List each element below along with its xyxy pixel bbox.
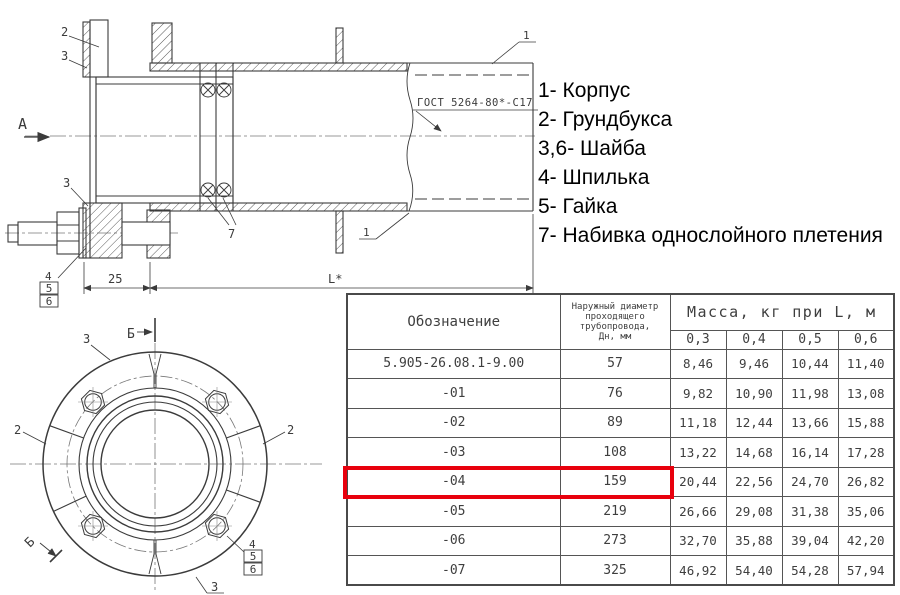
callout-1: 1: [523, 29, 530, 42]
mass-cell: 17,28: [838, 438, 894, 468]
mass-cell: 13,08: [838, 379, 894, 409]
callout-2: 2: [61, 25, 68, 39]
gland-block: [90, 203, 122, 258]
mass-cell: 14,68: [726, 438, 782, 468]
designation-cell: -01: [347, 379, 560, 409]
flange-view-drawing: Б Б 3 2 2 3 4 5 6: [0, 312, 340, 595]
dn-cell: 325: [560, 556, 670, 586]
legend-item: 5- Гайка: [538, 192, 883, 221]
section-b-label: Б: [22, 535, 38, 551]
callout-5: 5: [250, 550, 257, 563]
mass-cell: 11,98: [782, 379, 838, 409]
mass-cell: 10,44: [782, 349, 838, 379]
diameter-header-line: Наружный диаметр: [561, 302, 670, 312]
mass-cell: 9,46: [726, 349, 782, 379]
highlight-row-box: [343, 466, 674, 499]
designation-cell: -03: [347, 438, 560, 468]
mass-cell: 35,88: [726, 526, 782, 556]
legend-item: 3,6- Шайба: [538, 134, 883, 163]
diameter-header-line: Дн, мм: [561, 332, 670, 342]
legend-item: 4- Шпилька: [538, 163, 883, 192]
table-row: -01769,8210,9011,9813,08: [347, 379, 894, 409]
fin-top: [336, 28, 343, 63]
designation-cell: -05: [347, 497, 560, 527]
mass-cell: 31,38: [782, 497, 838, 527]
mass-cell: 10,90: [726, 379, 782, 409]
designation-cell: -07: [347, 556, 560, 586]
dn-cell: 273: [560, 526, 670, 556]
legend-item: 1- Корпус: [538, 76, 883, 105]
diameter-header-line: проходящего: [561, 312, 670, 322]
mass-cell: 29,08: [726, 497, 782, 527]
mass-cell: 9,82: [670, 379, 726, 409]
dn-cell: 76: [560, 379, 670, 409]
dim-L: L*: [328, 272, 342, 286]
sleeve-bottom-wall: [150, 203, 407, 211]
stud-shaft: [18, 222, 57, 245]
mass-cell: 13,66: [782, 408, 838, 438]
mass-cell: 46,92: [670, 556, 726, 586]
designation-cell: 5.905-26.08.1-9.00: [347, 349, 560, 379]
mass-cell: 8,46: [670, 349, 726, 379]
mass-cell: 16,14: [782, 438, 838, 468]
length-column: 0,3: [670, 330, 726, 349]
callout-7: 7: [228, 227, 235, 241]
mass-cell: 20,44: [670, 467, 726, 497]
designation-cell: -02: [347, 408, 560, 438]
mass-cell: 57,94: [838, 556, 894, 586]
mass-cell: 54,40: [726, 556, 782, 586]
parts-legend: 1- Корпус 2- Грундбукса 3,6- Шайба 4- Шп…: [538, 76, 883, 250]
mass-cell: 12,44: [726, 408, 782, 438]
mass-cell: 42,20: [838, 526, 894, 556]
mass-cell: 26,82: [838, 467, 894, 497]
mass-cell: 26,66: [670, 497, 726, 527]
designation-cell: -06: [347, 526, 560, 556]
mass-cell: 11,40: [838, 349, 894, 379]
dn-cell: 89: [560, 408, 670, 438]
table-row: -0521926,6629,0831,3835,06: [347, 497, 894, 527]
weld-bracket-top: [152, 23, 172, 63]
dn-cell: 219: [560, 497, 670, 527]
table-row: -0627332,7035,8839,0442,20: [347, 526, 894, 556]
mass-cell: 39,04: [782, 526, 838, 556]
mass-cell: 15,88: [838, 408, 894, 438]
callout-5: 5: [46, 282, 53, 295]
table-row: -0310813,2214,6816,1417,28: [347, 438, 894, 468]
drawing-sheet: А 2 3 3 4 5 6 7 1 1 ГОСТ 5264-80*-С17 25…: [0, 0, 900, 595]
mass-cell: 11,18: [670, 408, 726, 438]
fin-bottom: [336, 211, 343, 253]
designation-header: Обозначение: [347, 294, 560, 349]
mass-cell: 54,28: [782, 556, 838, 586]
callout-3: 3: [211, 580, 218, 594]
mass-cell: 24,70: [782, 467, 838, 497]
callout-6: 6: [250, 563, 257, 576]
mass-cell: 35,06: [838, 497, 894, 527]
gland-plate-top: [90, 20, 108, 77]
mass-header: Масса, кг при L, м: [670, 294, 894, 330]
diameter-header-line: трубопровода,: [561, 322, 670, 332]
view-a-label: А: [18, 115, 27, 133]
length-column: 0,6: [838, 330, 894, 349]
sleeve-top-wall: [150, 63, 407, 71]
length-column: 0,5: [782, 330, 838, 349]
weld-note: ГОСТ 5264-80*-С17: [417, 97, 533, 109]
break-line: [407, 63, 413, 211]
section-view-drawing: А 2 3 3 4 5 6 7 1 1 ГОСТ 5264-80*-С17 25…: [0, 0, 540, 312]
mass-table: Обозначение Наружный диаметр проходящего…: [346, 293, 895, 586]
table-row: -028911,1812,4413,6615,88: [347, 408, 894, 438]
callout-2: 2: [14, 423, 21, 437]
section-b-label: Б: [127, 327, 135, 342]
table-row: -0732546,9254,4054,2857,94: [347, 556, 894, 586]
dn-cell: 57: [560, 349, 670, 379]
dim-25: 25: [108, 272, 122, 286]
mass-cell: 13,22: [670, 438, 726, 468]
washer-top: [83, 22, 90, 77]
callout-1: 1: [363, 226, 370, 239]
mass-cell: 22,56: [726, 467, 782, 497]
dn-cell: 108: [560, 438, 670, 468]
stud-end: [8, 225, 18, 242]
stud-through: [122, 222, 170, 245]
callout-6: 6: [46, 295, 53, 308]
table-row: 5.905-26.08.1-9.00578,469,4610,4411,40: [347, 349, 894, 379]
callout-3: 3: [83, 332, 90, 346]
callout-3: 3: [63, 176, 70, 190]
length-column: 0,4: [726, 330, 782, 349]
callout-3: 3: [61, 49, 68, 63]
callout-2: 2: [287, 423, 294, 437]
legend-item: 7- Набивка однослойного плетения: [538, 221, 883, 250]
legend-item: 2- Грундбукса: [538, 105, 883, 134]
diameter-header: Наружный диаметр проходящего трубопровод…: [560, 294, 670, 349]
mass-cell: 32,70: [670, 526, 726, 556]
mass-table-container: Обозначение Наружный диаметр проходящего…: [346, 293, 895, 586]
